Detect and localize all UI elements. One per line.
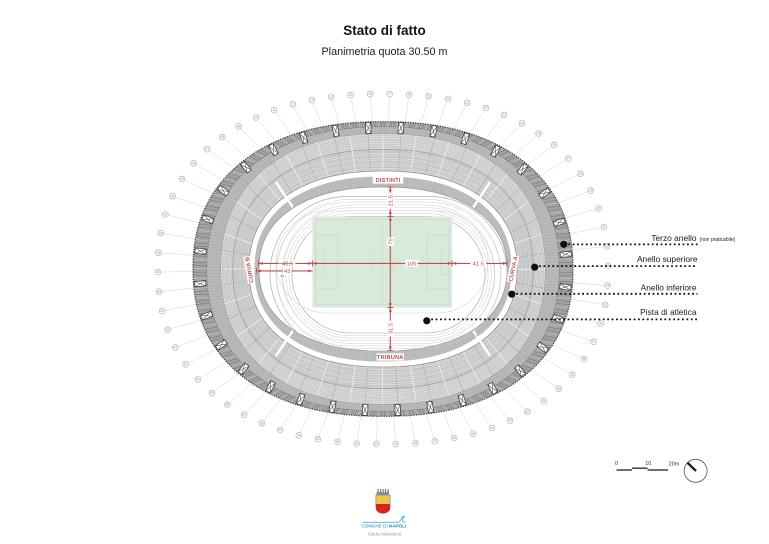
svg-text:Anello inferiore: Anello inferiore xyxy=(641,282,697,292)
svg-text:27: 27 xyxy=(566,157,570,161)
svg-text:62: 62 xyxy=(174,346,178,350)
svg-text:31: 31 xyxy=(602,225,606,229)
svg-text:20: 20 xyxy=(446,97,450,101)
svg-text:04: 04 xyxy=(171,194,175,198)
svg-text:43: 43 xyxy=(508,419,512,423)
svg-text:11: 11 xyxy=(272,108,276,112)
svg-text:25: 25 xyxy=(537,132,541,136)
svg-text:20m: 20m xyxy=(669,462,680,468)
svg-text:Stadio Maradona: Stadio Maradona xyxy=(368,532,402,537)
svg-text:13: 13 xyxy=(310,98,314,102)
svg-text:60: 60 xyxy=(196,378,200,382)
svg-text:70: 70 xyxy=(388,238,394,244)
svg-text:DISTINTI: DISTINTI xyxy=(376,178,401,184)
svg-text:03: 03 xyxy=(164,213,168,217)
svg-text:19: 19 xyxy=(427,94,431,98)
svg-text:10: 10 xyxy=(645,461,651,467)
svg-text:59: 59 xyxy=(210,391,214,395)
svg-text:02: 02 xyxy=(159,231,163,235)
svg-text:21: 21 xyxy=(465,101,469,105)
svg-text:46: 46 xyxy=(452,436,456,440)
svg-text:TRIBUNA: TRIBUNA xyxy=(377,355,404,361)
svg-text:49: 49 xyxy=(394,442,398,446)
svg-text:43: 43 xyxy=(284,269,290,275)
svg-text:0: 0 xyxy=(615,461,618,467)
svg-text:29: 29 xyxy=(589,189,593,193)
svg-text:Terzo anello: Terzo anello xyxy=(651,233,696,243)
svg-text:36: 36 xyxy=(599,322,603,326)
svg-text:Pista di atletica: Pista di atletica xyxy=(640,307,697,317)
svg-text:08: 08 xyxy=(220,135,224,139)
svg-text:35: 35 xyxy=(603,303,607,307)
svg-text:41.5: 41.5 xyxy=(473,262,484,268)
svg-text:09: 09 xyxy=(237,124,241,128)
svg-text:22: 22 xyxy=(484,106,488,110)
svg-text:39: 39 xyxy=(571,373,575,377)
svg-text:Anello superiore: Anello superiore xyxy=(637,254,698,264)
svg-text:10: 10 xyxy=(254,116,258,120)
svg-text:40.5: 40.5 xyxy=(282,262,293,268)
svg-text:17: 17 xyxy=(388,92,392,96)
svg-text:61: 61 xyxy=(184,362,188,366)
svg-text:COMUNE DI NAPOLI: COMUNE DI NAPOLI xyxy=(361,524,406,529)
svg-text:63: 63 xyxy=(166,328,170,332)
svg-text:18: 18 xyxy=(407,93,411,97)
svg-text:54: 54 xyxy=(297,433,301,437)
svg-text:50: 50 xyxy=(375,442,379,446)
svg-text:12: 12 xyxy=(291,102,295,106)
svg-text:41: 41 xyxy=(542,399,546,403)
svg-text:56: 56 xyxy=(260,421,264,425)
svg-text:44: 44 xyxy=(490,426,494,430)
svg-text:57: 57 xyxy=(242,413,246,417)
svg-text:48: 48 xyxy=(414,441,418,445)
svg-text:14: 14 xyxy=(329,95,333,99)
svg-text:30: 30 xyxy=(597,206,601,210)
svg-text:24: 24 xyxy=(520,121,524,125)
svg-text:07: 07 xyxy=(205,147,209,151)
svg-text:40: 40 xyxy=(557,387,561,391)
svg-text:58: 58 xyxy=(226,403,230,407)
svg-text:28: 28 xyxy=(579,172,583,176)
svg-text:06: 06 xyxy=(192,161,196,165)
svg-text:21.5: 21.5 xyxy=(388,195,394,206)
svg-text:26: 26 xyxy=(552,143,556,147)
svg-text:(non praticabile): (non praticabile) xyxy=(699,237,735,243)
svg-text:52: 52 xyxy=(336,440,340,444)
svg-text:66: 66 xyxy=(156,270,160,274)
svg-text:23: 23 xyxy=(502,113,506,117)
svg-text:105: 105 xyxy=(407,262,417,268)
svg-text:37: 37 xyxy=(592,340,596,344)
svg-text:53: 53 xyxy=(316,437,320,441)
svg-text:47: 47 xyxy=(433,439,437,443)
svg-text:15: 15 xyxy=(349,93,353,97)
svg-text:55: 55 xyxy=(278,428,282,432)
svg-text:42: 42 xyxy=(526,410,530,414)
svg-text:05: 05 xyxy=(180,177,184,181)
svg-text:34: 34 xyxy=(606,284,610,288)
svg-text:64: 64 xyxy=(160,309,164,313)
svg-text:31.5: 31.5 xyxy=(388,323,394,334)
svg-text:51: 51 xyxy=(355,442,359,446)
svg-text:4.2: 4.2 xyxy=(280,274,285,278)
svg-text:16: 16 xyxy=(368,92,372,96)
svg-text:65: 65 xyxy=(157,290,161,294)
svg-text:01: 01 xyxy=(157,251,161,255)
svg-text:38: 38 xyxy=(582,357,586,361)
svg-text:45: 45 xyxy=(471,432,475,436)
